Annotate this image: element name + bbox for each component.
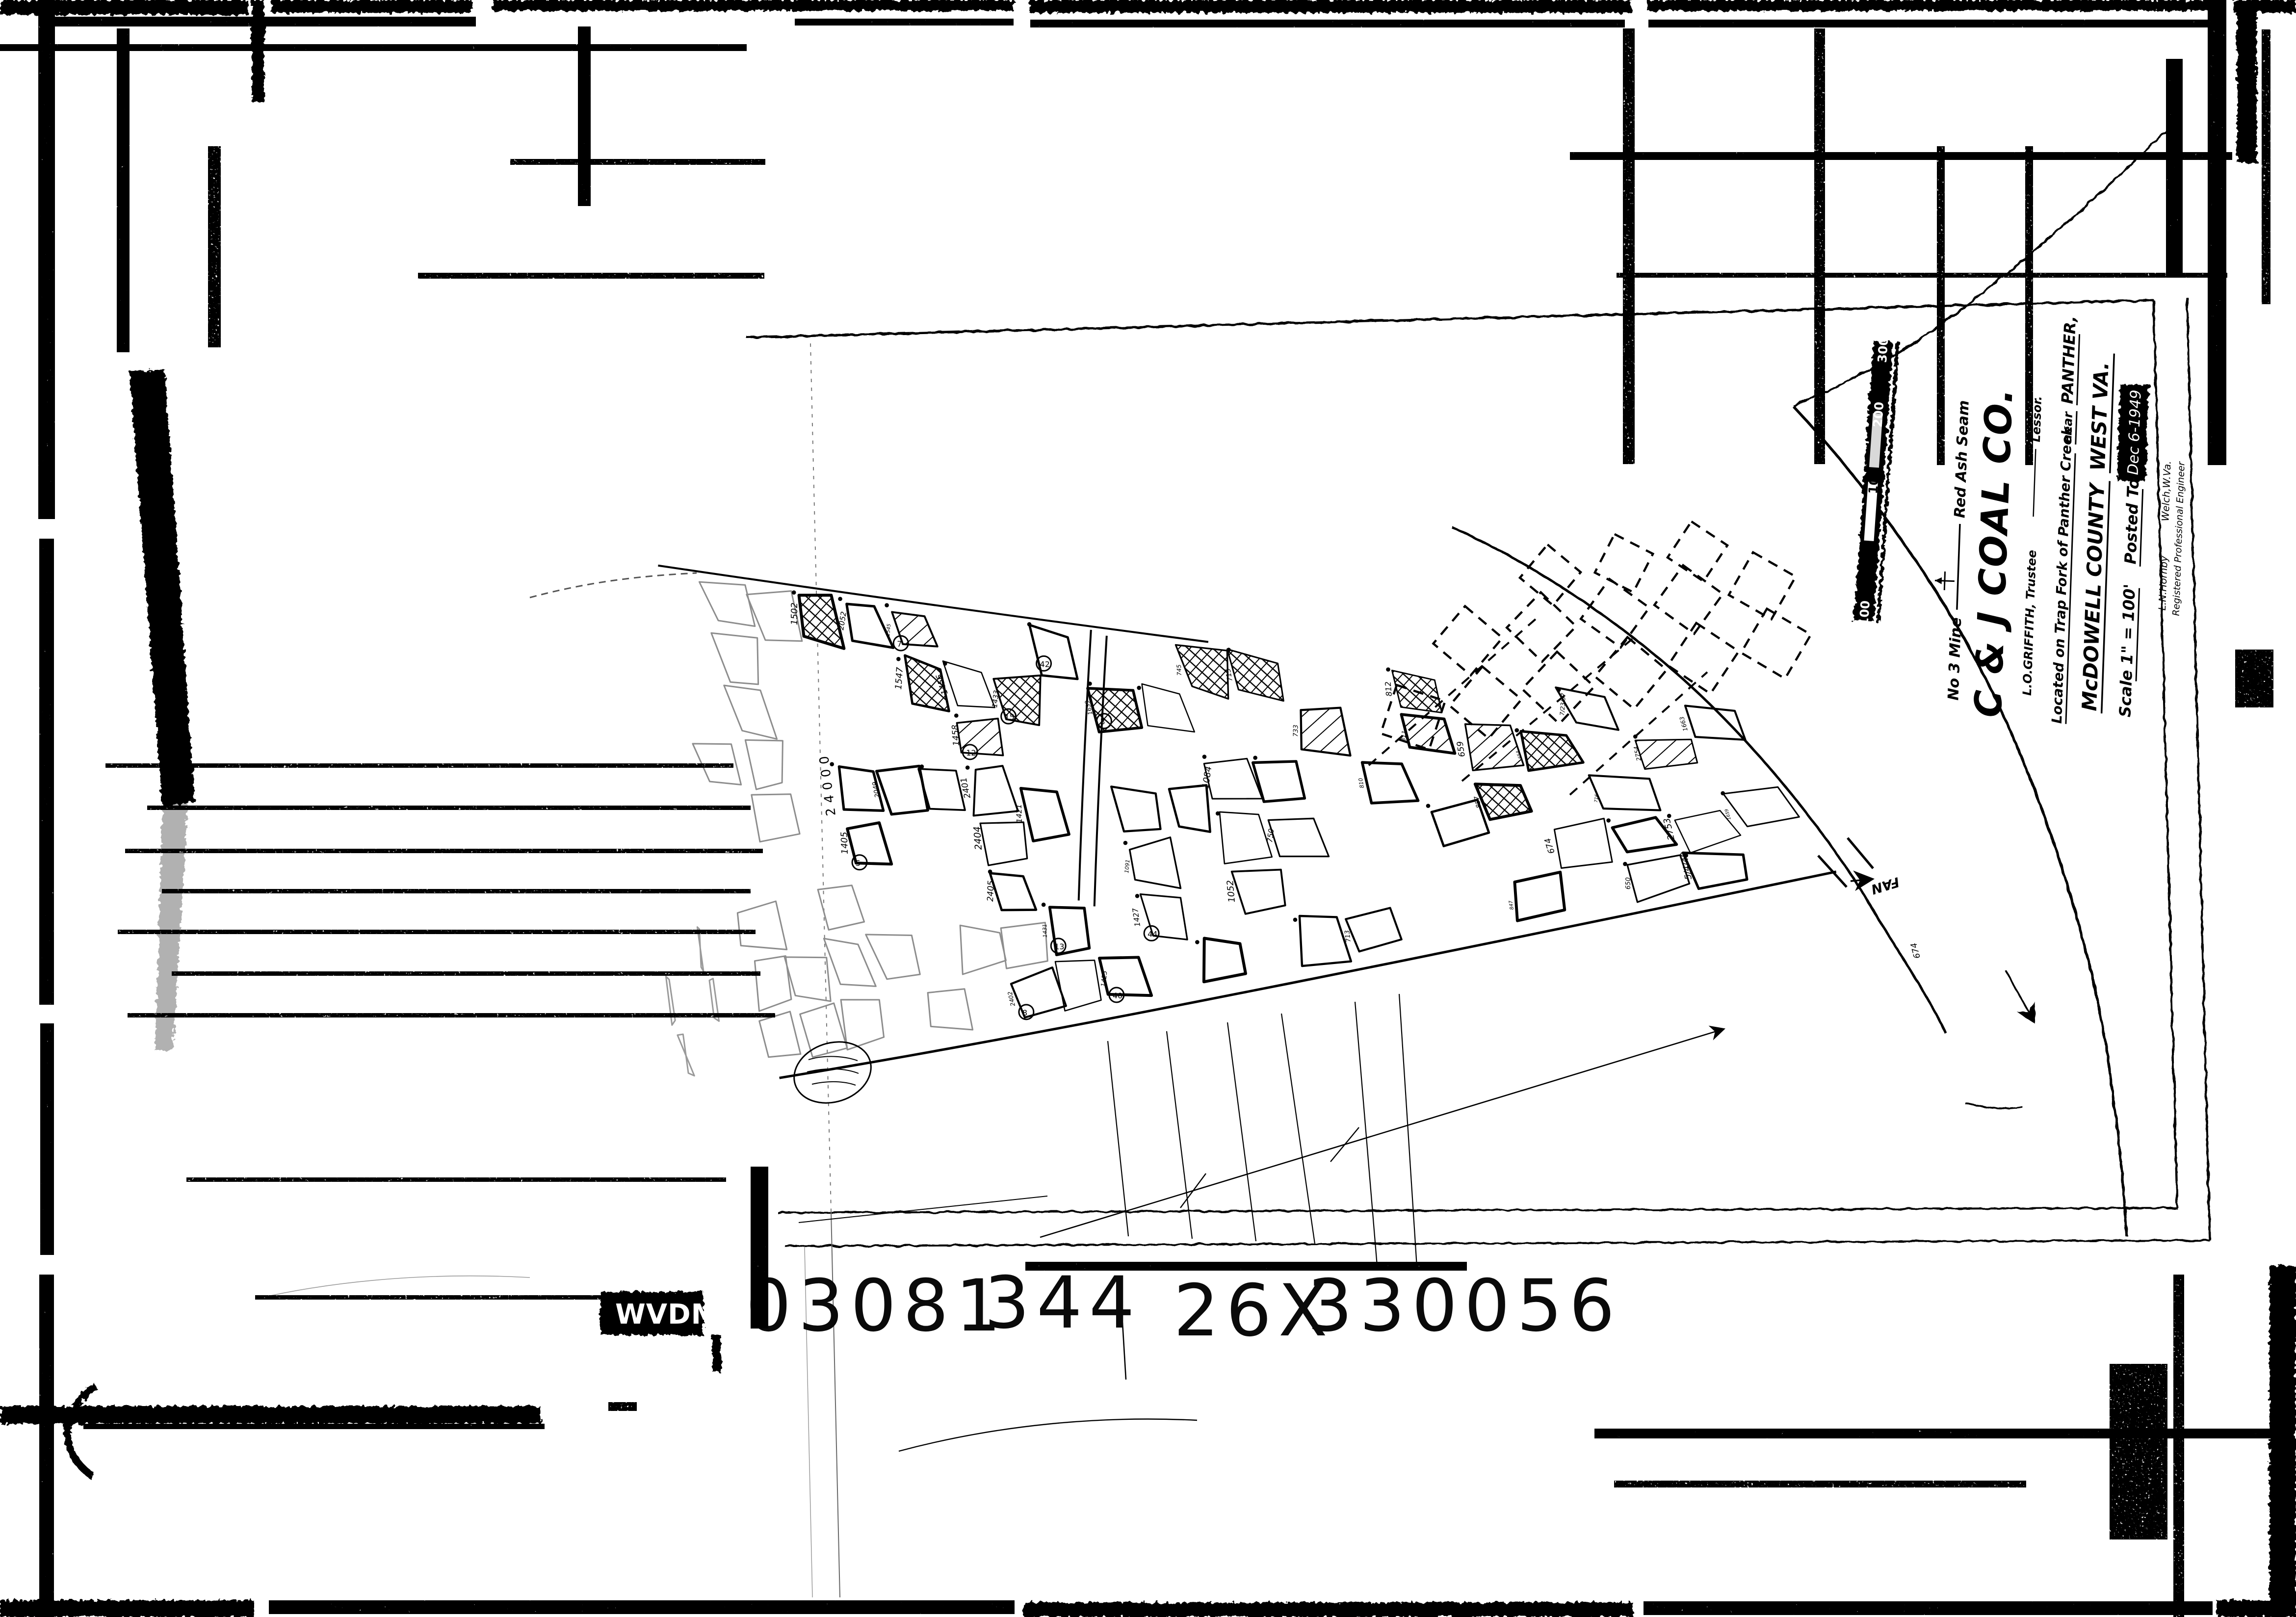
film-crease-mark: [67, 1386, 96, 1476]
near-word: near: [2060, 411, 2075, 443]
svg-text:7: 7: [897, 639, 902, 649]
fan-label: FAN: [1869, 874, 1901, 897]
svg-text:733: 733: [1292, 725, 1300, 737]
diagonal-film-streak: [130, 369, 195, 808]
svg-text:15: 15: [1005, 712, 1015, 722]
svg-text:44: 44: [1148, 929, 1157, 939]
svg-text:1431: 1431: [1042, 924, 1048, 938]
svg-text:659: 659: [1455, 740, 1467, 757]
mine-number-label: No 3 Mine: [1945, 617, 1965, 701]
svg-text:2404: 2404: [972, 826, 984, 850]
svg-text:1421: 1421: [1015, 804, 1024, 823]
svg-text:650: 650: [1625, 877, 1632, 889]
scale-bar: 100 0 100 200 300: [1853, 337, 1900, 627]
svg-text:1659: 1659: [1724, 808, 1732, 820]
company-name: C & J COAL CO.: [1966, 387, 2021, 718]
film-id-group-2: 344: [984, 1261, 1142, 1345]
svg-text:1405: 1405: [839, 832, 850, 855]
scale-tick-0: 100: [1856, 600, 1873, 626]
map-sheet-border-faint: [805, 343, 840, 1597]
svg-text:847: 847: [1508, 900, 1515, 910]
svg-text:674: 674: [1543, 837, 1557, 855]
svg-text:750: 750: [1265, 828, 1276, 843]
svg-text:5: 5: [856, 859, 861, 868]
svg-text:1545: 1545: [886, 624, 892, 636]
svg-text:810: 810: [1357, 778, 1365, 789]
svg-text:1433: 1433: [991, 690, 1001, 708]
svg-text:1547: 1547: [893, 667, 905, 690]
svg-text:13: 13: [1054, 942, 1064, 951]
scale-label: Scale 1" = 100': [2115, 583, 2139, 717]
film-id-group-4: 330056: [1307, 1264, 1621, 1348]
posted-label: Posted To: [2121, 478, 2142, 564]
title-block: No 3 Mine Red Ash Seam C & J COAL CO. L.…: [1930, 312, 2192, 728]
svg-text:5/4/48: 5/4/48: [1679, 851, 1694, 881]
scale-tick-4: 300: [1875, 337, 1891, 363]
film-id-number: 03081 344 26X 330056: [746, 1261, 1621, 1353]
stray-curve: [899, 1419, 1197, 1451]
svg-text:1663: 1663: [1678, 716, 1689, 732]
svg-text:2405: 2405: [986, 880, 996, 902]
engineer-town: Welch,W.Va.: [2159, 461, 2173, 522]
coordinate-label: 24000: [816, 750, 839, 816]
svg-text:42: 42: [1040, 659, 1050, 669]
north-arrow: [1934, 571, 1955, 590]
svg-text:12: 12: [966, 748, 976, 757]
posted-date: Dec 6-1949: [2125, 390, 2145, 475]
wvdm-label: WVDM: [615, 1299, 719, 1330]
svg-text:2052: 2052: [836, 611, 848, 631]
seam-label: Red Ash Seam: [1951, 400, 1972, 518]
microfilm-scan-page: 1405515022049205215471545724028240524042…: [0, 0, 2296, 1617]
svg-text:1458: 1458: [950, 724, 962, 746]
svg-text:1425: 1425: [1100, 970, 1109, 987]
engineer-name: L.N.Hornby: [2156, 555, 2170, 610]
survey-projection-lines: [255, 994, 1723, 1451]
svg-text:716: 716: [1594, 794, 1599, 803]
film-id-group-1: 03081: [746, 1264, 1008, 1348]
svg-text:1084: 1084: [1200, 765, 1214, 789]
svg-text:1091: 1091: [1123, 859, 1131, 873]
scale-tick-1: 0: [1862, 542, 1877, 551]
state-name: WEST VA.: [2086, 362, 2113, 471]
svg-text:3: 3: [1100, 717, 1105, 727]
town-name: PANTHER,: [2058, 315, 2080, 404]
svg-text:8: 8: [1022, 1008, 1027, 1017]
projected-workings-dashed: [1369, 522, 1811, 795]
scale-tick-2: 100: [1866, 468, 1882, 495]
county-name: McDOWELL COUNTY: [2078, 481, 2109, 712]
mine-map-scan: 1405515022049205215471545724028240524042…: [0, 0, 2296, 1617]
creek-flow-arrow: [2006, 970, 2034, 1021]
svg-text:1427: 1427: [1131, 907, 1142, 927]
svg-text:812: 812: [1383, 681, 1394, 697]
film-artifacts: [0, 0, 2296, 1617]
svg-text:1052: 1052: [1225, 880, 1237, 903]
engineer-title: Registered Professional Engineer: [2171, 461, 2187, 616]
lessor-name: L.O.GRIFFITH, Trustee: [2020, 549, 2039, 696]
survey-annotations: 1405515022049205215471545724028240524042…: [789, 590, 1732, 1019]
svg-text:745: 745: [1175, 664, 1183, 676]
creek-elevation: 674: [1909, 941, 1923, 960]
film-streaks: [67, 369, 195, 1476]
svg-text:1502: 1502: [789, 602, 800, 625]
creek-upper-course: [1793, 120, 2177, 406]
bearing-arrow-line: [1040, 1029, 1723, 1237]
scale-tick-3: 200: [1871, 401, 1887, 428]
svg-text:40: 40: [1113, 991, 1122, 1000]
